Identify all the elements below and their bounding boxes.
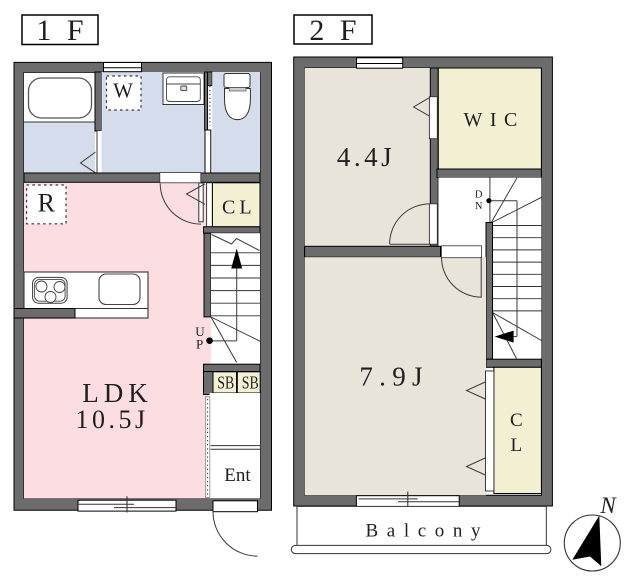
svg-text:SB: SB xyxy=(242,373,259,393)
svg-text:10.5J: 10.5J xyxy=(75,405,148,434)
svg-text:N: N xyxy=(475,201,483,212)
svg-text:1 F: 1 F xyxy=(36,14,87,47)
svg-text:P: P xyxy=(196,336,203,351)
svg-text:L: L xyxy=(510,435,522,456)
svg-text:SB: SB xyxy=(217,373,234,393)
svg-text:W: W xyxy=(113,79,133,103)
svg-text:4.4J: 4.4J xyxy=(337,142,395,172)
svg-text:7.9J: 7.9J xyxy=(359,362,428,392)
svg-text:Balcony: Balcony xyxy=(366,520,490,541)
svg-text:2 F: 2 F xyxy=(309,14,360,47)
svg-text:WIC: WIC xyxy=(464,109,525,131)
svg-text:CL: CL xyxy=(222,197,256,219)
svg-text:R: R xyxy=(38,189,56,218)
svg-text:D: D xyxy=(475,190,483,201)
svg-text:C: C xyxy=(510,410,523,431)
svg-text:LDK: LDK xyxy=(82,378,153,408)
svg-text:N: N xyxy=(599,493,617,518)
svg-text:Ent: Ent xyxy=(224,465,251,486)
